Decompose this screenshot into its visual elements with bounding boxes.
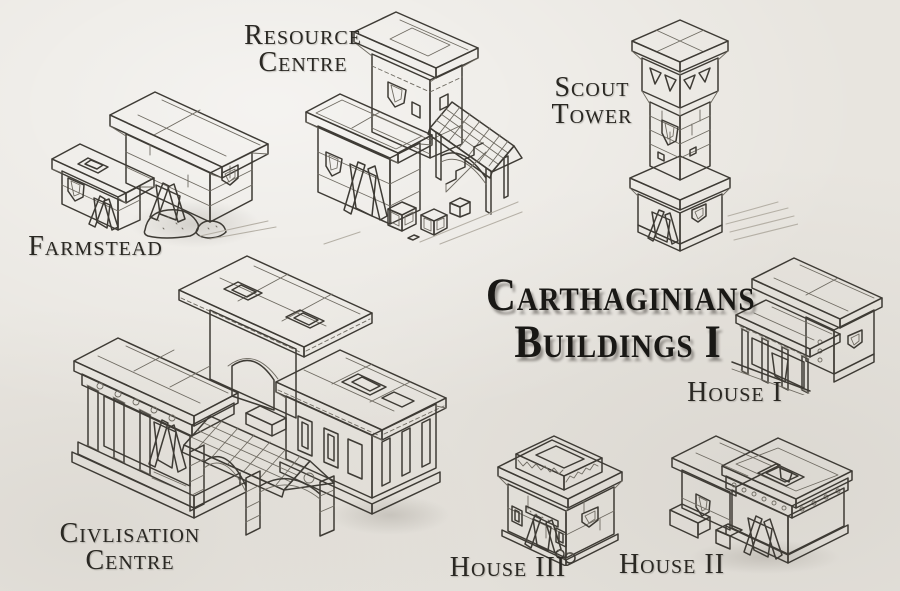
- sheet-title: Carthaginians Buildings I: [468, 272, 768, 366]
- civilisation-centre-label: Civlisation Centre: [55, 520, 205, 574]
- house-iii-sketch: [476, 416, 631, 566]
- house-iii-label: House III: [446, 554, 570, 581]
- label-line: House I: [676, 379, 794, 406]
- label-line: House III: [446, 554, 570, 581]
- label-line: Civlisation: [55, 520, 205, 547]
- concept-sheet: Farmstead Resource Centre Scout Tower Ci…: [0, 0, 900, 591]
- scout-tower-label: Scout Tower: [540, 74, 644, 128]
- scout-tower-sketch: [618, 16, 798, 256]
- label-line: Resource: [240, 22, 366, 49]
- label-line: House II: [616, 551, 728, 578]
- farmstead-label: Farmstead: [28, 233, 163, 260]
- farmstead-sketch: [50, 70, 285, 240]
- civilisation-centre-sketch: [42, 246, 457, 538]
- label-line: Tower: [540, 101, 644, 128]
- label-line: Centre: [240, 49, 366, 76]
- house-ii-label: House II: [616, 551, 728, 578]
- label-line: Farmstead: [28, 233, 163, 260]
- resource-centre-label: Resource Centre: [240, 22, 366, 76]
- label-line: Scout: [540, 74, 644, 101]
- house-ii-sketch: [660, 426, 865, 566]
- house-i-label: House I: [676, 379, 794, 406]
- title-line-1: Carthaginians: [486, 272, 750, 319]
- title-line-2: Buildings I: [486, 319, 750, 366]
- label-line: Centre: [55, 547, 205, 574]
